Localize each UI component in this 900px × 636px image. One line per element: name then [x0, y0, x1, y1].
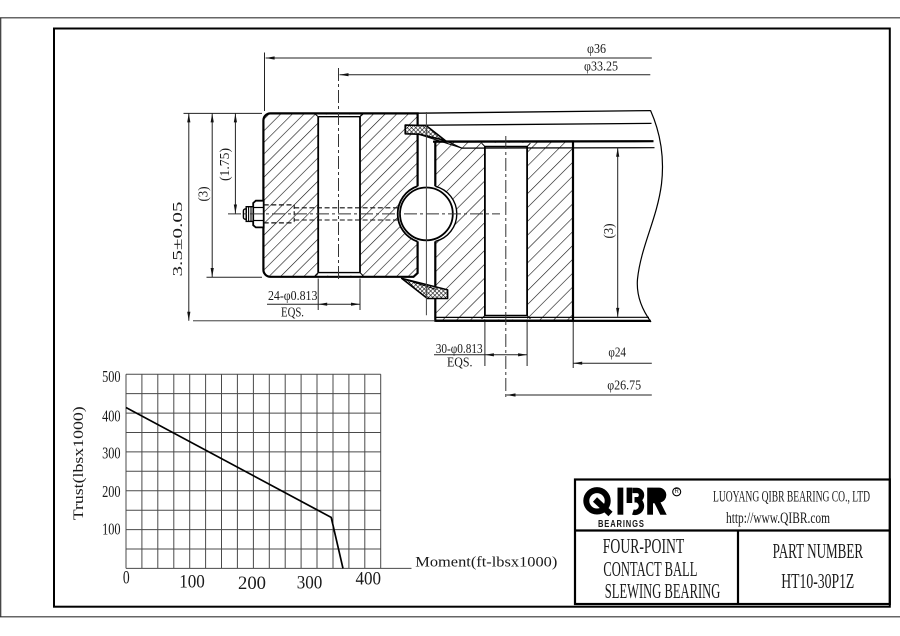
svg-text:Moment(ft-lbsx1000): Moment(ft-lbsx1000)	[415, 554, 557, 570]
svg-text:SLEWING BEARING: SLEWING BEARING	[605, 579, 721, 603]
svg-text:24-φ0.813: 24-φ0.813	[268, 289, 318, 304]
svg-text:φ36: φ36	[587, 42, 606, 57]
svg-text:Trust(lbsx1000): Trust(lbsx1000)	[71, 406, 87, 520]
svg-text:BEARINGS: BEARINGS	[598, 518, 645, 529]
svg-text:100: 100	[179, 572, 205, 592]
svg-text:0: 0	[123, 568, 130, 588]
svg-text:(1.75): (1.75)	[218, 148, 233, 181]
svg-text:R: R	[675, 489, 680, 495]
svg-text:HT10-30P1Z: HT10-30P1Z	[781, 569, 854, 593]
svg-text:400: 400	[102, 407, 121, 426]
svg-text:CONTACT BALL: CONTACT BALL	[603, 557, 697, 581]
svg-text:φ26.75: φ26.75	[607, 378, 641, 393]
svg-text:φ24: φ24	[608, 345, 626, 360]
svg-text:400: 400	[356, 569, 382, 589]
svg-text:3.5±0.05: 3.5±0.05	[171, 202, 186, 277]
svg-text:100: 100	[102, 520, 121, 539]
svg-text:φ33.25: φ33.25	[584, 60, 618, 75]
svg-text:300: 300	[297, 573, 323, 593]
svg-text:300: 300	[102, 444, 121, 463]
svg-text:200: 200	[102, 482, 121, 501]
svg-text:EQS.: EQS.	[447, 355, 473, 370]
svg-text:PART NUMBER: PART NUMBER	[773, 539, 864, 563]
svg-text:500: 500	[102, 367, 121, 386]
svg-text:(3): (3)	[197, 186, 212, 201]
svg-text:FOUR-POINT: FOUR-POINT	[603, 534, 685, 558]
svg-text:EQS.: EQS.	[281, 305, 304, 320]
svg-text:http://www.QIBR.com: http://www.QIBR.com	[726, 510, 830, 527]
svg-text:LUOYANG QIBR BEARING CO., LTD: LUOYANG QIBR BEARING CO., LTD	[713, 488, 870, 505]
svg-text:200: 200	[238, 574, 266, 594]
svg-text:(3): (3)	[602, 223, 617, 238]
